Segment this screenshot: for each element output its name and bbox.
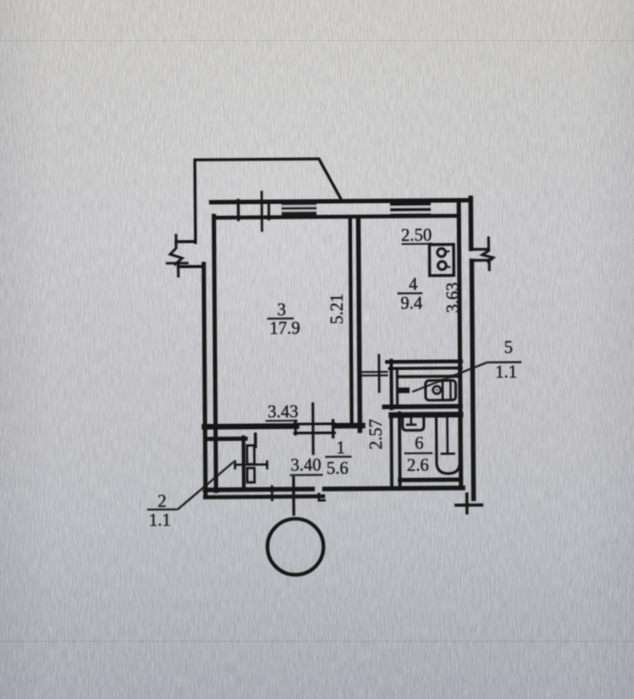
svg-text:2.6: 2.6 <box>407 455 429 475</box>
svg-text:9.4: 9.4 <box>400 293 422 313</box>
svg-text:3.63: 3.63 <box>442 282 462 313</box>
svg-text:3.40: 3.40 <box>290 455 321 475</box>
svg-text:3: 3 <box>277 299 286 319</box>
svg-text:4: 4 <box>409 274 418 294</box>
svg-text:2.50: 2.50 <box>401 225 432 245</box>
svg-text:5.6: 5.6 <box>326 458 348 478</box>
svg-text:5.21: 5.21 <box>327 294 347 325</box>
svg-text:1.1: 1.1 <box>149 510 171 530</box>
svg-text:1: 1 <box>336 437 345 457</box>
svg-text:1.1: 1.1 <box>495 361 517 381</box>
svg-text:2: 2 <box>158 491 167 511</box>
svg-text:2.57: 2.57 <box>365 419 385 450</box>
svg-text:3.43: 3.43 <box>268 401 299 421</box>
svg-text:5: 5 <box>504 337 513 357</box>
svg-text:17.9: 17.9 <box>269 318 300 338</box>
svg-text:6: 6 <box>415 433 424 453</box>
